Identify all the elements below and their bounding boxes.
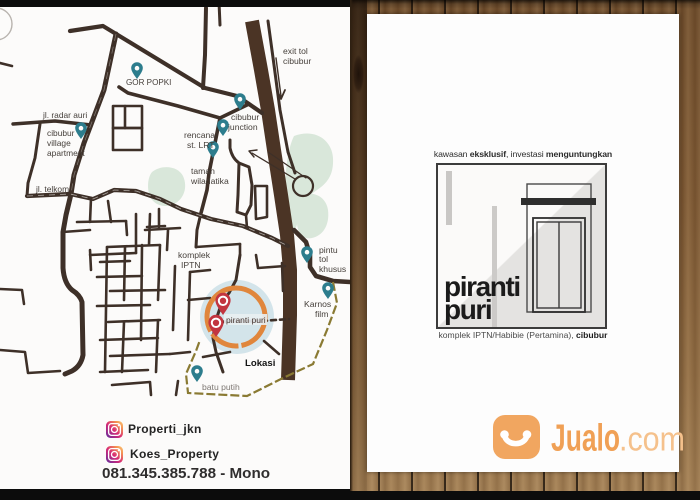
svg-text:junction: junction bbox=[227, 122, 258, 132]
svg-text:apartment: apartment bbox=[47, 148, 85, 158]
svg-text:village: village bbox=[47, 138, 71, 148]
svg-text:081.345.385.788 - Mono: 081.345.385.788 - Mono bbox=[102, 465, 270, 482]
svg-text:st. LRT: st. LRT bbox=[187, 140, 215, 150]
svg-text:batu putih: batu putih bbox=[202, 382, 240, 392]
svg-text:Properti_jkn: Properti_jkn bbox=[128, 422, 202, 436]
svg-text:.com: .com bbox=[619, 421, 685, 459]
svg-text:jl. radar auri: jl. radar auri bbox=[42, 110, 87, 120]
svg-text:GOR POPKI: GOR POPKI bbox=[126, 78, 171, 87]
svg-text:taman: taman bbox=[191, 166, 215, 176]
svg-text:wiladatika: wiladatika bbox=[190, 176, 229, 186]
svg-text:khusus: khusus bbox=[319, 264, 346, 274]
svg-text:rencana: rencana bbox=[184, 130, 215, 140]
svg-text:komplek: komplek bbox=[178, 250, 211, 260]
svg-text:Lokasi: Lokasi bbox=[245, 358, 275, 369]
svg-text:piranti puri: piranti puri bbox=[226, 315, 266, 325]
svg-text:Koes_Property: Koes_Property bbox=[130, 447, 219, 461]
svg-text:cibubur: cibubur bbox=[231, 112, 259, 122]
svg-text:tol: tol bbox=[319, 254, 328, 264]
svg-text:jl. telkom: jl. telkom bbox=[35, 184, 69, 194]
svg-text:Karnos: Karnos bbox=[304, 299, 331, 309]
svg-text:cibubur: cibubur bbox=[283, 56, 311, 66]
svg-text:film: film bbox=[315, 309, 328, 319]
svg-text:exit tol: exit tol bbox=[283, 46, 308, 56]
svg-text:Jualo: Jualo bbox=[551, 418, 620, 460]
svg-text:IPTN: IPTN bbox=[181, 260, 201, 270]
svg-text:cibubur: cibubur bbox=[47, 128, 75, 138]
